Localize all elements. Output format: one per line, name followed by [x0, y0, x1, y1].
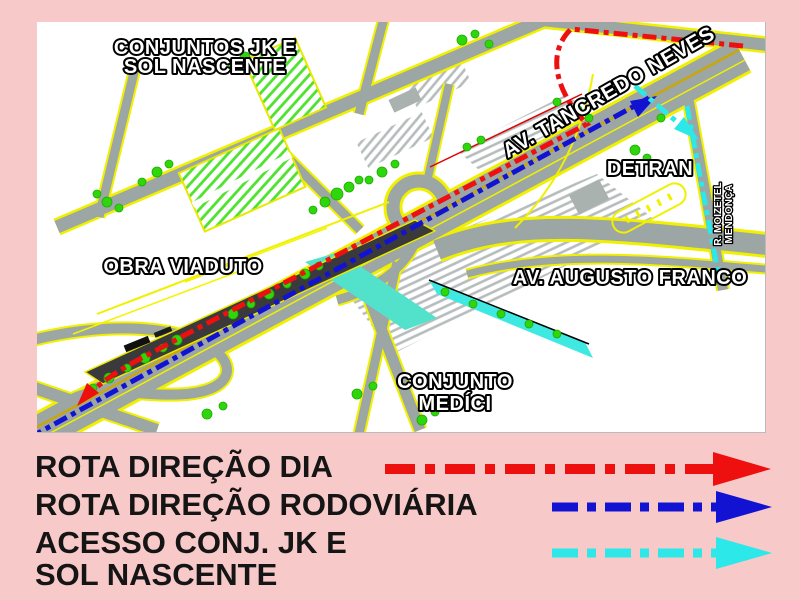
label-detran: DETRAN: [607, 158, 693, 180]
legend-arrow-acesso-icon: [552, 536, 774, 570]
legend-label-acesso-line2: SOL NASCENTE: [35, 559, 347, 591]
label-rua-moizetel-line1: R. MOIZETEL: [713, 182, 724, 245]
map-canvas: CONJUNTOS JK E SOL NASCENTE AV. TANCREDO…: [37, 22, 766, 433]
label-av-augusto-franco: AV. AUGUSTO FRANCO: [513, 267, 748, 289]
label-conjunto-medici-line2: MEDÍCI: [419, 392, 492, 415]
label-conjuntos-jk-line2: SOL NASCENTE: [124, 56, 286, 78]
legend-label-rota-dia: ROTA DIREÇÃO DIA: [35, 451, 333, 483]
legend-label-acesso: ACESSO CONJ. JK E SOL NASCENTE: [35, 527, 347, 591]
label-obra-viaduto: OBRA VIADUTO: [103, 256, 262, 278]
legend-arrow-rota-rodoviaria-icon: [552, 490, 774, 524]
legend-arrow-rota-dia-icon: [383, 451, 773, 487]
legend-label-rota-rodoviaria: ROTA DIREÇÃO RODOVIÁRIA: [35, 489, 478, 521]
map-drawing: CONJUNTOS JK E SOL NASCENTE AV. TANCREDO…: [37, 22, 765, 432]
page-background: CONJUNTOS JK E SOL NASCENTE AV. TANCREDO…: [0, 0, 800, 600]
label-rua-moizetel-line2: MENDONÇA: [724, 185, 735, 244]
label-conjunto-medici-line1: CONJUNTO: [397, 371, 513, 393]
legend-label-acesso-line1: ACESSO CONJ. JK E: [35, 527, 347, 559]
